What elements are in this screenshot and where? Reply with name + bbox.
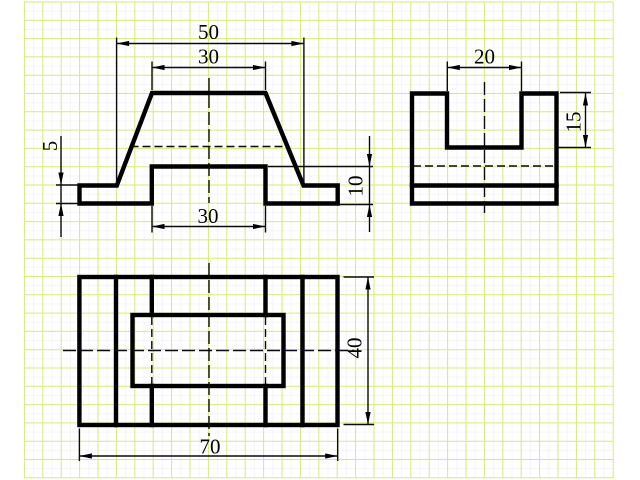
svg-text:50: 50 <box>198 20 219 44</box>
svg-text:20: 20 <box>474 45 495 69</box>
svg-text:30: 30 <box>198 45 219 69</box>
svg-text:15: 15 <box>562 112 586 133</box>
svg-text:10: 10 <box>344 176 368 197</box>
svg-text:40: 40 <box>343 338 367 359</box>
svg-text:30: 30 <box>198 204 219 228</box>
svg-text:5: 5 <box>38 141 62 152</box>
svg-text:70: 70 <box>200 435 221 459</box>
